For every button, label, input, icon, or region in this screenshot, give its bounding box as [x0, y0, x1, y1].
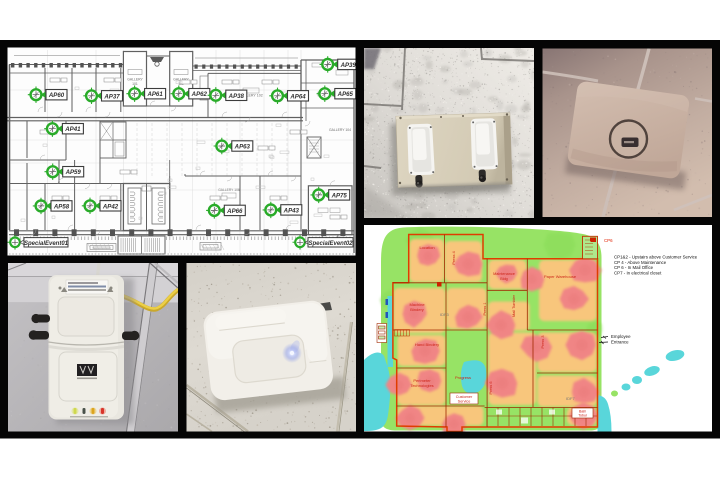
svg-text:IDF3: IDF3 — [440, 312, 449, 317]
svg-text:GALLERY 104: GALLERY 104 — [329, 128, 351, 132]
svg-text:AP66: AP66 — [226, 208, 243, 215]
svg-text:CP 6 - In Mail Office: CP 6 - In Mail Office — [614, 265, 654, 270]
svg-text:GALLERY: GALLERY — [127, 78, 143, 82]
svg-text:Technologies: Technologies — [410, 383, 433, 388]
svg-text:GALLERY 106: GALLERY 106 — [218, 188, 240, 192]
svg-text:Press 1: Press 1 — [483, 303, 487, 316]
svg-text:Employee: Employee — [611, 334, 631, 339]
svg-text:AP64: AP64 — [289, 93, 306, 100]
svg-text:AP60: AP60 — [48, 92, 65, 99]
svg-text:AP59: AP59 — [65, 169, 82, 176]
svg-text:Bldg: Bldg — [500, 277, 508, 281]
svg-text:Service: Service — [458, 400, 471, 404]
svg-text:Bindery: Bindery — [410, 307, 424, 312]
svg-text:Hand Bindery: Hand Bindery — [415, 342, 439, 347]
svg-text:AP41: AP41 — [64, 126, 81, 133]
svg-text:CP1&2 - Upstairs above Custome: CP1&2 - Upstairs above Customer Service — [614, 255, 698, 260]
svg-text:AP62: AP62 — [191, 91, 208, 98]
svg-text:Entrance: Entrance — [611, 340, 629, 345]
svg-text:AP65: AP65 — [337, 91, 354, 98]
svg-text:Paper Warehouse: Paper Warehouse — [544, 274, 577, 279]
svg-text:Press 3: Press 3 — [541, 336, 545, 349]
svg-text:SpecialEvent02: SpecialEvent02 — [308, 241, 353, 247]
svg-text:AP63: AP63 — [234, 144, 251, 151]
svg-text:CP6: CP6 — [604, 238, 613, 243]
svg-text:AP39: AP39 — [340, 62, 357, 69]
svg-text:IDF7: IDF7 — [566, 396, 575, 401]
svg-text:Maintenance: Maintenance — [493, 272, 515, 276]
svg-text:Press 6: Press 6 — [489, 382, 493, 395]
svg-text:Tobul: Tobul — [578, 414, 587, 418]
svg-text:Press 4: Press 4 — [451, 250, 456, 264]
svg-text:CP 4 - Above Maintenance: CP 4 - Above Maintenance — [614, 260, 667, 265]
svg-text:AP43: AP43 — [283, 207, 300, 214]
svg-text:Location: Location — [419, 245, 434, 250]
svg-text:Mail Tumbler: Mail Tumbler — [512, 294, 516, 316]
svg-text:AP38: AP38 — [228, 93, 245, 100]
svg-text:AP61: AP61 — [146, 91, 163, 98]
svg-text:CP7 - In electrical closet: CP7 - In electrical closet — [614, 270, 662, 275]
svg-text:SpecialEvent01: SpecialEvent01 — [24, 241, 69, 247]
svg-text:AP37: AP37 — [103, 93, 120, 100]
svg-text:101: 101 — [132, 82, 138, 86]
svg-text:AP58: AP58 — [53, 203, 70, 210]
svg-text:Progress: Progress — [455, 375, 471, 380]
svg-text:Customer: Customer — [456, 395, 473, 399]
svg-text:AP75: AP75 — [331, 192, 348, 199]
svg-text:AP42: AP42 — [102, 203, 119, 210]
